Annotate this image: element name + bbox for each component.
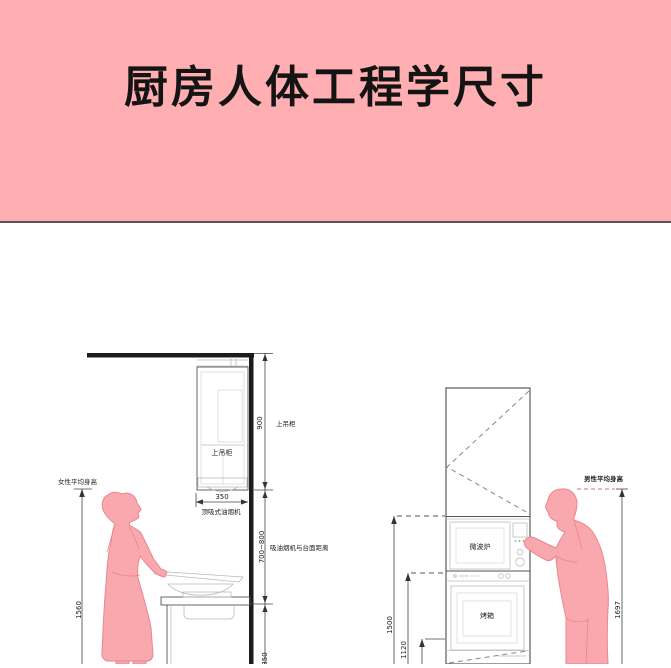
- hood-distance-value: 700~800: [258, 531, 266, 564]
- tall-cabinet: 微波炉: [446, 388, 530, 664]
- female-figure: [102, 492, 167, 664]
- cabinet-dimension-1120: 1120: [400, 573, 445, 664]
- diagram-area: 上吊柜 350 顶吸式油烟机: [0, 222, 671, 664]
- dim-1500-value: 1500: [386, 616, 394, 634]
- oven-label: 烤箱: [480, 611, 494, 620]
- microwave-label: 微波炉: [470, 542, 491, 551]
- header-banner: 厨房人体工程学尺寸: [0, 0, 671, 223]
- page-title: 厨房人体工程学尺寸: [124, 64, 547, 112]
- cabinet-height-value: 900: [256, 416, 264, 429]
- wall-dimension-chain: 900 上吊柜 700~800 吸油烟机与台面距离 850: [250, 353, 329, 664]
- cabinet-dimension-lower: [419, 639, 445, 664]
- female-height-label: 女性平均身高: [58, 477, 98, 486]
- kitchen-counter: [153, 571, 250, 664]
- upper-cabinet: 上吊柜: [197, 367, 248, 490]
- dim-1120-value: 1120: [400, 641, 408, 659]
- hood-distance-label: 吸油烟机与台面距离: [270, 543, 329, 552]
- kitchen-ergonomics-svg: 上吊柜 350 顶吸式油烟机: [0, 222, 671, 664]
- hood-width-value: 350: [215, 493, 228, 501]
- counter-height-value: 850: [261, 652, 269, 664]
- range-hood: [198, 478, 247, 492]
- cabinet-height-label: 上吊柜: [276, 419, 296, 428]
- ceiling-line: [87, 353, 254, 358]
- hood-name-label: 顶吸式油烟机: [202, 507, 242, 516]
- wok: [168, 584, 233, 595]
- upper-cabinet-label: 上吊柜: [212, 448, 233, 457]
- cabinet-dimension-1500: 1500: [386, 516, 445, 664]
- hood-duct: [197, 357, 248, 367]
- left-diagram: 上吊柜 350 顶吸式油烟机: [58, 353, 329, 664]
- under-counter-recess: [184, 606, 234, 619]
- male-height-value: 1697: [614, 601, 622, 619]
- hood-width-dimension: 350 顶吸式油烟机: [196, 493, 248, 516]
- female-height-value: 1560: [75, 601, 83, 619]
- male-height-label: 男性平均身高: [583, 474, 624, 483]
- poster: 厨房人体工程学尺寸 上吊柜: [0, 0, 671, 664]
- male-figure: [524, 489, 608, 664]
- wall-line: [249, 353, 254, 664]
- right-diagram: 微波炉: [386, 388, 628, 664]
- female-height-dimension: 女性平均身高 1560: [58, 477, 98, 664]
